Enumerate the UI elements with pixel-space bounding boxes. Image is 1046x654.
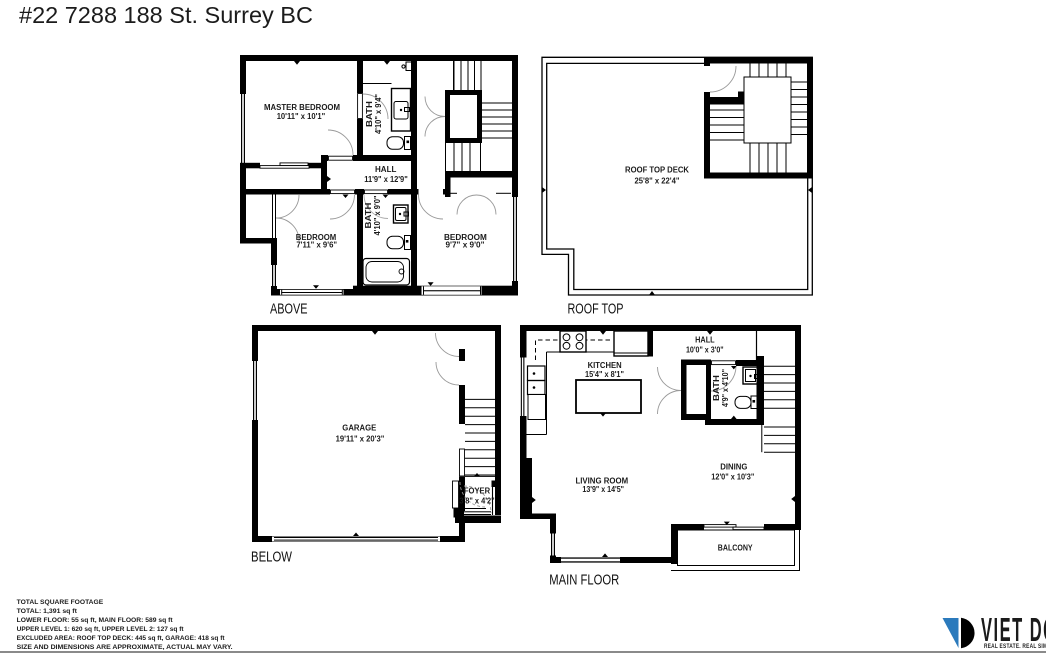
svg-text:#22 7288 188 St. Surrey BC: #22 7288 188 St. Surrey BC xyxy=(19,2,313,28)
svg-text:GARAGE: GARAGE xyxy=(342,423,376,433)
svg-text:4'10" x 9'4": 4'10" x 9'4" xyxy=(373,94,383,134)
svg-text:ROOF TOP DECK: ROOF TOP DECK xyxy=(625,165,690,175)
svg-text:DINING: DINING xyxy=(720,462,747,472)
svg-text:4'9" x 4'10": 4'9" x 4'10" xyxy=(720,369,730,407)
svg-text:ROOF TOP: ROOF TOP xyxy=(568,301,624,317)
svg-text:UPPER LEVEL 1: 620 sq ft, UPPE: UPPER LEVEL 1: 620 sq ft, UPPER LEVEL 2:… xyxy=(17,626,185,633)
svg-text:MAIN FLOOR: MAIN FLOOR xyxy=(549,573,619,589)
svg-text:15'4" x 8'1": 15'4" x 8'1" xyxy=(585,369,624,379)
svg-text:ABOVE: ABOVE xyxy=(270,301,308,317)
svg-text:19'11" x 20'3": 19'11" x 20'3" xyxy=(336,433,385,443)
svg-text:3'8" x 4'2": 3'8" x 4'2" xyxy=(459,495,494,505)
svg-text:12'0" x 10'3": 12'0" x 10'3" xyxy=(711,471,754,481)
svg-text:BALCONY: BALCONY xyxy=(718,543,753,553)
svg-text:REAL ESTATE. REAL SIMPLE: REAL ESTATE. REAL SIMPLE xyxy=(984,643,1046,650)
svg-text:FOYER: FOYER xyxy=(464,486,491,496)
svg-text:9'7" x 9'0": 9'7" x 9'0" xyxy=(446,240,485,250)
svg-text:EXCLUDED AREA: ROOF TOP DECK:: EXCLUDED AREA: ROOF TOP DECK: 445 sq ft,… xyxy=(17,635,226,642)
svg-text:HALL: HALL xyxy=(695,335,715,345)
svg-text:LOWER FLOOR: 55 sq ft, MAIN FL: LOWER FLOOR: 55 sq ft, MAIN FLOOR: 589 s… xyxy=(17,617,174,624)
svg-text:4'10" x 9'0": 4'10" x 9'0" xyxy=(372,196,382,236)
svg-text:TOTAL SQUARE FOOTAGE: TOTAL SQUARE FOOTAGE xyxy=(17,599,104,606)
svg-text:TOTAL: 1,391 sq ft: TOTAL: 1,391 sq ft xyxy=(17,608,78,615)
svg-text:BELOW: BELOW xyxy=(251,549,292,565)
svg-text:13'9" x 14'5": 13'9" x 14'5" xyxy=(582,484,624,494)
svg-text:25'8" x 22'4": 25'8" x 22'4" xyxy=(635,176,680,186)
svg-text:10'0" x 3'0": 10'0" x 3'0" xyxy=(686,345,724,355)
svg-text:HALL: HALL xyxy=(375,164,396,174)
svg-text:7'11" x 9'6": 7'11" x 9'6" xyxy=(296,240,337,250)
svg-text:11'9" x 12'9": 11'9" x 12'9" xyxy=(364,174,408,184)
svg-text:SIZE AND DIMENSIONS ARE APPROX: SIZE AND DIMENSIONS ARE APPROXIMATE, ACT… xyxy=(17,644,233,651)
svg-text:10'11" x 10'1": 10'11" x 10'1" xyxy=(277,111,326,121)
